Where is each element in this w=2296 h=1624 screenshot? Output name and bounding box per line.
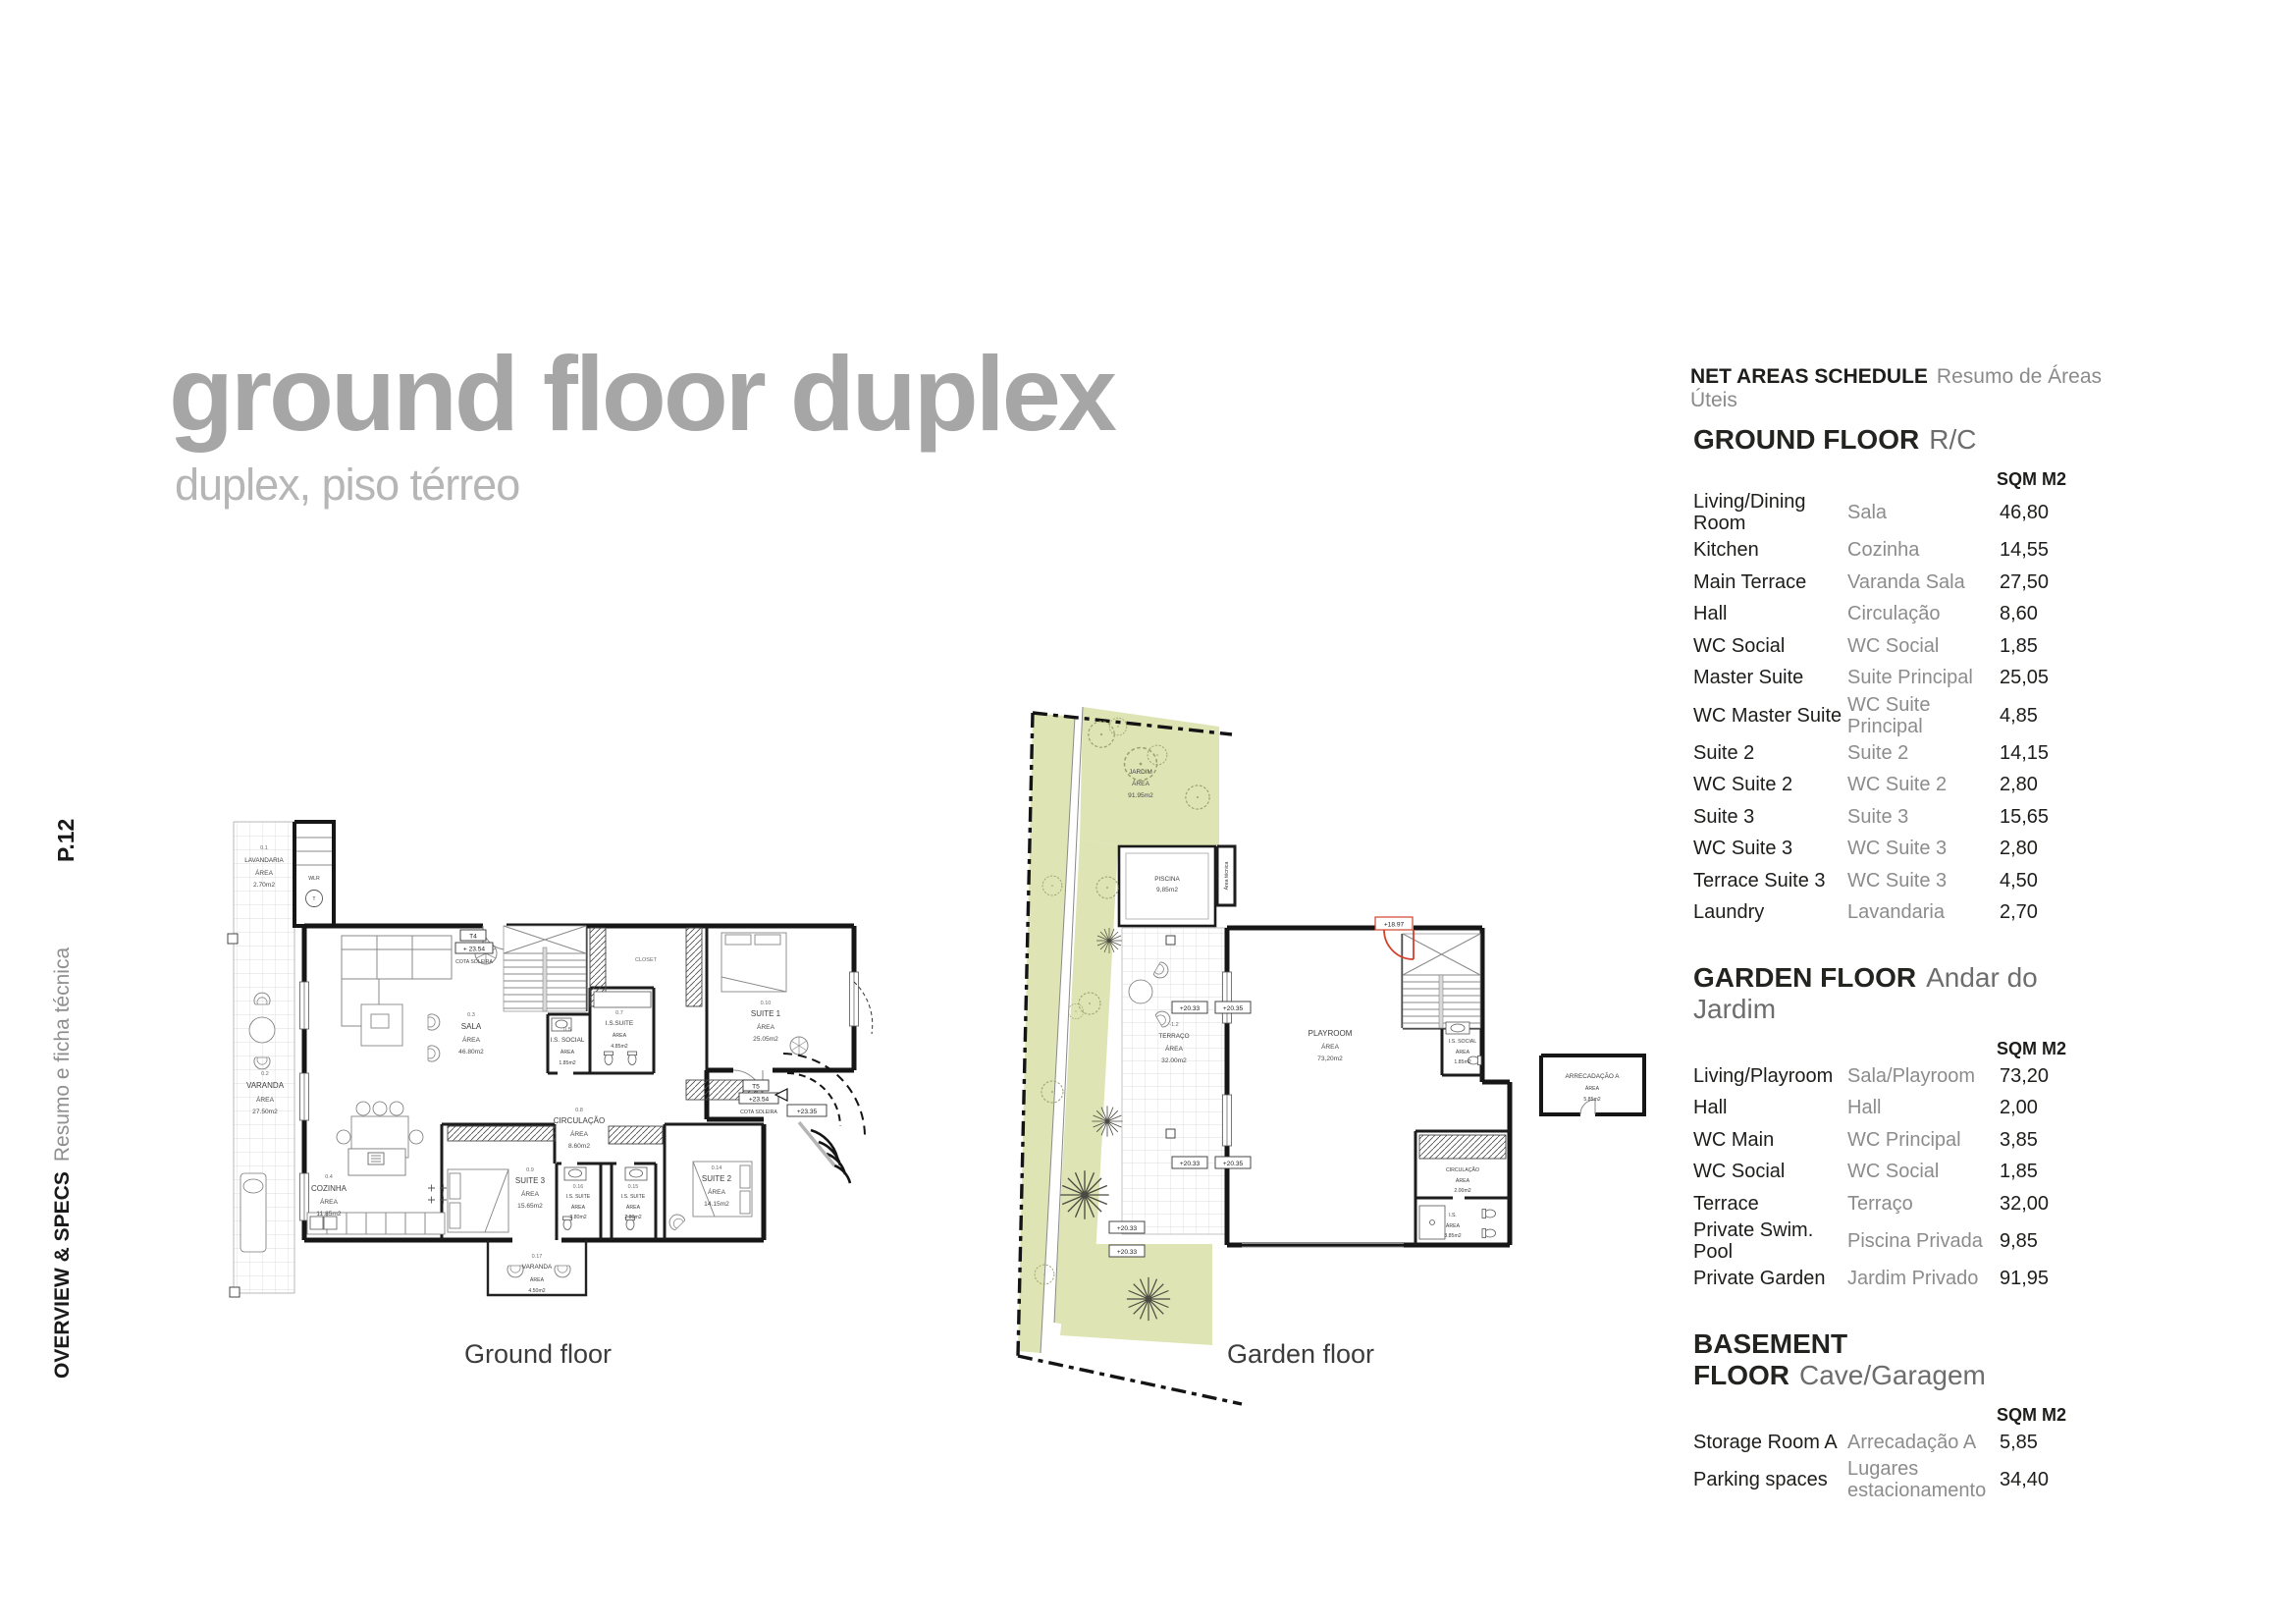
room-label-is-suite-16: 0.16I.S. SUITEÁREA2.80m2 xyxy=(566,1184,591,1220)
room-name-en: WC Main xyxy=(1693,1129,1847,1151)
svg-text:0.7: 0.7 xyxy=(615,1010,623,1016)
room-name-pt: WC Suite 2 xyxy=(1847,774,2000,795)
room-name-pt: Varanda Sala xyxy=(1847,571,2000,593)
table-row: Hall Circulação 8,60 xyxy=(1690,598,2127,630)
table-row: WC Social WC Social 1,85 xyxy=(1690,630,2127,663)
room-label-sala: 0.3SALAÁREA46.80m2 xyxy=(458,1012,484,1056)
room-label-is-suite: 0.7I.S.SUITEÁREA4.85m2 xyxy=(606,1010,633,1050)
room-area-value: 1,85 xyxy=(2000,635,2127,657)
svg-text:ÁREA: ÁREA xyxy=(1321,1042,1340,1051)
room-name-pt: Terraço xyxy=(1847,1193,2000,1215)
room-name-en: Storage Room A xyxy=(1693,1432,1847,1453)
svg-text:15.65m2: 15.65m2 xyxy=(517,1203,543,1210)
svg-text:+23.35: +23.35 xyxy=(797,1109,818,1115)
balcony-chair xyxy=(555,1266,570,1277)
svg-text:I.S. SOCIAL: I.S. SOCIAL xyxy=(1449,1039,1476,1045)
svg-text:ÁREA: ÁREA xyxy=(613,1032,627,1039)
svg-text:ÁREA: ÁREA xyxy=(708,1187,726,1196)
room-area-value: 91,95 xyxy=(2000,1268,2127,1289)
table-row: Master Suite Suite Principal 25,05 xyxy=(1690,662,2127,694)
svg-text:ÁREA: ÁREA xyxy=(256,1095,275,1104)
svg-text:COTA SOLEIRA: COTA SOLEIRA xyxy=(455,959,493,965)
svg-text:11.85m2: 11.85m2 xyxy=(316,1211,342,1218)
room-label-circulacao: CIRCULAÇÃOÁREA2.00m2 xyxy=(1446,1166,1479,1194)
driveway-arcs xyxy=(783,982,873,1183)
room-area-value: 46,80 xyxy=(2000,502,2127,523)
svg-text:0.3: 0.3 xyxy=(467,1012,475,1018)
room-name-en: Private Swim. Pool xyxy=(1693,1219,1847,1263)
svg-text:2.80m2: 2.80m2 xyxy=(624,1215,641,1220)
table-row: Living/Dining Room Sala 46,80 xyxy=(1690,491,2127,534)
room-label-is-suite-15: 0.15I.S. SUITEÁREA2.80m2 xyxy=(621,1184,646,1220)
heading-pt: Cave/Garagem xyxy=(1799,1360,1986,1390)
room-label-suite3: 0.9SUITE 3ÁREA15.65m2 xyxy=(515,1167,546,1210)
room-name-pt: Jardim Privado xyxy=(1847,1268,2000,1289)
room-area-value: 2,00 xyxy=(2000,1097,2127,1118)
svg-text:SALA: SALA xyxy=(461,1022,482,1031)
svg-text:ÁREA: ÁREA xyxy=(255,868,274,877)
circulation-wardrobe xyxy=(1419,1135,1506,1159)
suite1-bed xyxy=(721,933,786,992)
svg-text:0.10: 0.10 xyxy=(761,1001,772,1006)
svg-text:CIRCULAÇÃO: CIRCULAÇÃO xyxy=(554,1116,605,1125)
svg-text:9,85m2: 9,85m2 xyxy=(1156,887,1178,893)
room-name-pt: Suite 2 xyxy=(1847,742,2000,764)
section-heading-ground: GROUND FLOORR/C xyxy=(1690,424,2127,456)
room-area-value: 27,50 xyxy=(2000,571,2127,593)
svg-text:0.9: 0.9 xyxy=(526,1167,534,1173)
table-row: WC Suite 3 WC Suite 3 2,80 xyxy=(1690,833,2127,865)
room-label-varanda-17: 0.17VARANDAÁREA4.50m2 xyxy=(522,1254,553,1294)
suite3-wardrobe xyxy=(448,1126,556,1141)
svg-text:I.S.SUITE: I.S.SUITE xyxy=(606,1020,633,1027)
table-row: WC Social WC Social 1,85 xyxy=(1690,1156,2127,1188)
room-label-suite1: 0.10SUITE 1ÁREA25.05m2 xyxy=(751,1001,781,1043)
room-name-en: Suite 2 xyxy=(1693,742,1847,764)
room-label-is-social: 0.5I.S. SOCIALÁREA1.85m2 xyxy=(551,1027,585,1066)
table-row: Living/Playroom Sala/Playroom 73,20 xyxy=(1690,1060,2127,1093)
room-name-pt: Lavandaria xyxy=(1847,901,2000,923)
room-label-tecnica: Área técnica xyxy=(1223,861,1230,890)
schedule-title: NET AREAS SCHEDULEResumo de Áreas Úteis xyxy=(1690,365,2127,412)
svg-text:COZINHA: COZINHA xyxy=(311,1184,347,1193)
svg-text:1.85m2: 1.85m2 xyxy=(559,1060,575,1066)
svg-text:ÁREA: ÁREA xyxy=(320,1197,339,1206)
sidebar-section: OVERVIEW & SPECSResumo e ficha técnica xyxy=(51,947,75,1379)
svg-text:ARRECADAÇÃO A: ARRECADAÇÃO A xyxy=(1565,1071,1620,1080)
svg-text:VARANDA: VARANDA xyxy=(246,1081,285,1090)
schedule-title-en: NET AREAS SCHEDULE xyxy=(1690,365,1928,388)
room-name-en: Main Terrace xyxy=(1693,571,1847,593)
table-row: WC Suite 2 WC Suite 2 2,80 xyxy=(1690,769,2127,801)
svg-text:+20.33: +20.33 xyxy=(1180,1161,1201,1167)
balcony-chair xyxy=(507,1266,523,1277)
basement-floor-rows: Storage Room A Arrecadação A 5,85 Parkin… xyxy=(1690,1427,2127,1502)
svg-text:ÁREA: ÁREA xyxy=(521,1189,540,1198)
room-name-en: Parking spaces xyxy=(1693,1469,1847,1490)
table-row: Terrace Suite 3 WC Suite 3 4,50 xyxy=(1690,865,2127,897)
room-area-value: 15,65 xyxy=(2000,806,2127,828)
table-row: Private Swim. Pool Piscina Privada 9,85 xyxy=(1690,1219,2127,1263)
ground-floor-plan: T WLR xyxy=(147,781,874,1311)
garden-floor-caption: Garden floor xyxy=(1193,1339,1409,1370)
svg-text:ÁREA: ÁREA xyxy=(757,1022,775,1031)
room-name-en: Living/Dining Room xyxy=(1693,491,1847,534)
terrace-table xyxy=(249,1017,275,1043)
svg-text:25.05m2: 25.05m2 xyxy=(753,1036,778,1043)
room-name-en: WC Suite 3 xyxy=(1693,838,1847,859)
svg-text:+20.33: +20.33 xyxy=(1117,1249,1138,1256)
terrace-post xyxy=(228,934,238,944)
room-name-pt: Arrecadação A xyxy=(1847,1432,2000,1453)
svg-text:ÁREA: ÁREA xyxy=(571,1204,586,1211)
svg-text:0.5: 0.5 xyxy=(563,1027,571,1033)
room-name-en: Hall xyxy=(1693,603,1847,624)
room-name-pt: WC Social xyxy=(1847,635,2000,657)
room-name-pt: Lugares estacionamento xyxy=(1847,1458,2000,1501)
room-area-value: 1,85 xyxy=(2000,1161,2127,1182)
svg-text:ÁREA: ÁREA xyxy=(1456,1049,1470,1056)
closet-wardrobe xyxy=(686,928,702,1006)
svg-text:0.2: 0.2 xyxy=(261,1071,269,1077)
terrace-tiles xyxy=(1122,928,1227,1234)
room-area-value: 4,85 xyxy=(2000,705,2127,727)
svg-text:I.S. SOCIAL: I.S. SOCIAL xyxy=(551,1037,585,1044)
room-area-value: 3,85 xyxy=(2000,1129,2127,1151)
room-label-playroom: PLAYROOMÁREA73,20m2 xyxy=(1308,1029,1353,1062)
armchair-icon xyxy=(428,1014,440,1030)
room-name-en: WC Suite 2 xyxy=(1693,774,1847,795)
table-row: Parking spaces Lugares estacionamento 34… xyxy=(1690,1458,2127,1501)
room-name-en: Kitchen xyxy=(1693,539,1847,561)
room-name-en: Terrace Suite 3 xyxy=(1693,870,1847,892)
svg-text:ÁREA: ÁREA xyxy=(1132,779,1150,787)
page-subtitle: duplex, piso térreo xyxy=(175,460,519,511)
room-name-en: Laundry xyxy=(1693,901,1847,923)
svg-text:LAVANDARIA: LAVANDARIA xyxy=(244,857,284,864)
room-name-pt: Cozinha xyxy=(1847,539,2000,561)
room-name-en: Private Garden xyxy=(1693,1268,1847,1289)
svg-text:CIRCULAÇÃO: CIRCULAÇÃO xyxy=(1446,1166,1479,1173)
svg-text:+23.54: +23.54 xyxy=(749,1097,770,1104)
room-name-pt: Circulação xyxy=(1847,603,2000,624)
terrace-table xyxy=(1129,980,1152,1003)
svg-text:2.70m2: 2.70m2 xyxy=(253,882,275,889)
room-name-en: Terrace xyxy=(1693,1193,1847,1215)
svg-text:JARDIM: JARDIM xyxy=(1129,769,1152,776)
svg-text:73,20m2: 73,20m2 xyxy=(1317,1056,1343,1062)
sidebar-section-pt: Resumo e ficha técnica xyxy=(51,947,74,1162)
table-row: Main Terrace Varanda Sala 27,50 xyxy=(1690,567,2127,599)
room-name-en: WC Master Suite xyxy=(1693,705,1847,727)
svg-text:SUITE 1: SUITE 1 xyxy=(751,1009,781,1018)
room-area-value: 2,70 xyxy=(2000,901,2127,923)
net-areas-schedule: NET AREAS SCHEDULEResumo de Áreas Úteis … xyxy=(1690,365,2127,1501)
table-row: Kitchen Cozinha 14,55 xyxy=(1690,534,2127,567)
room-area-value: 2,80 xyxy=(2000,774,2127,795)
brochure-page: P.12 OVERVIEW & SPECSResumo e ficha técn… xyxy=(0,0,2296,1624)
table-row: WC Main WC Principal 3,85 xyxy=(1690,1124,2127,1157)
toilet-icon xyxy=(605,1052,614,1065)
svg-text:ÁREA: ÁREA xyxy=(570,1129,589,1138)
svg-text:3.85m2: 3.85m2 xyxy=(1444,1233,1461,1239)
room-name-pt: WC Suite Principal xyxy=(1847,694,2000,737)
svg-text:VARANDA: VARANDA xyxy=(522,1264,553,1271)
cota-t5: T5 +23.54 COTA SOLEIRA +23.35 xyxy=(739,1080,827,1116)
svg-text:ÁREA: ÁREA xyxy=(530,1276,545,1283)
svg-text:ÁREA: ÁREA xyxy=(1165,1044,1184,1053)
room-area-value: 9,85 xyxy=(2000,1230,2127,1252)
terrace-post xyxy=(230,1287,240,1297)
svg-text:32.00m2: 32.00m2 xyxy=(1161,1057,1187,1064)
unit-label: SQM M2 xyxy=(1690,1405,2127,1427)
garden-floor-plan: +18.97 xyxy=(991,677,1669,1409)
svg-text:0.15: 0.15 xyxy=(628,1184,639,1190)
room-name-en: WC Social xyxy=(1693,635,1847,657)
svg-text:ÁREA: ÁREA xyxy=(561,1049,575,1056)
svg-text:0.4: 0.4 xyxy=(325,1174,333,1180)
svg-text:T5: T5 xyxy=(752,1084,760,1091)
room-area-value: 4,50 xyxy=(2000,870,2127,892)
svg-text:0.16: 0.16 xyxy=(573,1184,584,1190)
room-name-en: Hall xyxy=(1693,1097,1847,1118)
svg-text:4.85m2: 4.85m2 xyxy=(611,1044,627,1050)
ground-floor-rows: Living/Dining Room Sala 46,80 Kitchen Co… xyxy=(1690,491,2127,929)
table-row: Private Garden Jardim Privado 91,95 xyxy=(1690,1263,2127,1295)
toilet-icon xyxy=(1482,1210,1496,1218)
room-name-pt: Suite 3 xyxy=(1847,806,2000,828)
room-name-pt: Hall xyxy=(1847,1097,2000,1118)
room-area-value: 5,85 xyxy=(2000,1432,2127,1453)
svg-text:COTA SOLEIRA: COTA SOLEIRA xyxy=(740,1110,777,1115)
page-title: ground floor duplex xyxy=(169,332,1114,455)
room-name-en: Living/Playroom xyxy=(1693,1065,1847,1087)
room-area-value: 2,80 xyxy=(2000,838,2127,859)
svg-text:+20.35: +20.35 xyxy=(1223,1161,1244,1167)
room-name-en: Master Suite xyxy=(1693,667,1847,688)
table-row: Terrace Terraço 32,00 xyxy=(1690,1188,2127,1220)
room-area-value: 14,15 xyxy=(2000,742,2127,764)
svg-text:27.50m2: 27.50m2 xyxy=(252,1109,278,1115)
table-row: Hall Hall 2,00 xyxy=(1690,1092,2127,1124)
sidebar-section-en: OVERVIEW & SPECS xyxy=(51,1171,74,1379)
staircase xyxy=(504,926,586,1011)
table-row: Suite 2 Suite 2 14,15 xyxy=(1690,737,2127,770)
svg-text:ÁREA: ÁREA xyxy=(1585,1085,1600,1092)
svg-text:ÁREA: ÁREA xyxy=(1446,1222,1461,1229)
svg-text:0.8: 0.8 xyxy=(575,1108,583,1113)
room-name-pt: WC Suite 3 xyxy=(1847,838,2000,859)
room-area-value: 32,00 xyxy=(2000,1193,2127,1215)
svg-text:2.80m2: 2.80m2 xyxy=(569,1215,586,1220)
room-name-pt: WC Suite 3 xyxy=(1847,870,2000,892)
svg-text:1.85m2: 1.85m2 xyxy=(1454,1059,1470,1065)
svg-text:PLAYROOM: PLAYROOM xyxy=(1308,1029,1353,1038)
bidet-icon xyxy=(1482,1229,1496,1238)
bathtub xyxy=(594,992,651,1007)
room-area-value: 25,05 xyxy=(2000,667,2127,688)
room-label-circulacao: 0.8CIRCULAÇÃOÁREA8.60m2 xyxy=(554,1108,605,1150)
svg-text:+20.33: +20.33 xyxy=(1180,1005,1201,1012)
storage-room xyxy=(1541,1056,1644,1114)
room-name-pt: WC Social xyxy=(1847,1161,2000,1182)
stove-icon xyxy=(428,1185,447,1204)
svg-text:ÁREA: ÁREA xyxy=(462,1035,481,1044)
room-name-pt: Piscina Privada xyxy=(1847,1230,2000,1252)
svg-text:SUITE 3: SUITE 3 xyxy=(515,1176,546,1185)
room-label-arrecadacao: ARRECADAÇÃO AÁREA5.85m2 xyxy=(1565,1071,1620,1103)
page-number: P.12 xyxy=(53,819,80,862)
garden-floor-rows: Living/Playroom Sala/Playroom 73,20 Hall… xyxy=(1690,1060,2127,1295)
heading-pt: R/C xyxy=(1929,424,1976,455)
svg-text:I.S.: I.S. xyxy=(1449,1213,1457,1218)
sun-lounger xyxy=(240,1173,266,1252)
room-area-value: 34,40 xyxy=(2000,1469,2127,1490)
svg-text:14.15m2: 14.15m2 xyxy=(704,1201,729,1208)
armchair-icon xyxy=(667,1212,686,1231)
room-name-pt: Sala/Playroom xyxy=(1847,1065,2000,1087)
svg-text:8.60m2: 8.60m2 xyxy=(568,1143,590,1150)
table-row: Storage Room A Arrecadação A 5,85 xyxy=(1690,1427,2127,1459)
svg-text:T4: T4 xyxy=(469,934,477,941)
table-row: Suite 3 Suite 3 15,65 xyxy=(1690,801,2127,834)
svg-text:2.00m2: 2.00m2 xyxy=(1454,1188,1470,1194)
svg-text:+ 23.54: + 23.54 xyxy=(463,947,486,953)
svg-text:46.80m2: 46.80m2 xyxy=(458,1049,484,1056)
svg-text:ÁREA: ÁREA xyxy=(1456,1177,1470,1184)
ground-floor-caption: Ground floor xyxy=(430,1339,646,1370)
svg-text:+18.97: +18.97 xyxy=(1384,922,1405,929)
svg-text:SUITE 2: SUITE 2 xyxy=(702,1174,732,1183)
table-row: Laundry Lavandaria 2,70 xyxy=(1690,896,2127,929)
svg-text:TERRAÇO: TERRAÇO xyxy=(1158,1033,1189,1040)
svg-text:PISCINA: PISCINA xyxy=(1154,876,1180,883)
hall-closet xyxy=(609,1126,663,1144)
section-heading-basement: BASEMENT FLOORCave/Garagem xyxy=(1690,1328,2127,1391)
svg-text:0.17: 0.17 xyxy=(532,1254,543,1260)
room-area-value: 8,60 xyxy=(2000,603,2127,624)
unit-label: SQM M2 xyxy=(1690,469,2127,491)
cota-t4: T4 + 23.54 COTA SOLEIRA xyxy=(455,930,493,965)
svg-text:+20.35: +20.35 xyxy=(1223,1005,1244,1012)
svg-text:0.14: 0.14 xyxy=(712,1165,722,1171)
room-name-pt: Sala xyxy=(1847,502,2000,523)
room-area-value: 14,55 xyxy=(2000,539,2127,561)
room-name-pt: Suite Principal xyxy=(1847,667,2000,688)
room-name-pt: WC Principal xyxy=(1847,1129,2000,1151)
room-name-en: WC Social xyxy=(1693,1161,1847,1182)
room-label-cozinha: 0.4COZINHAÁREA11.85m2 xyxy=(311,1174,347,1218)
svg-text:+20.33: +20.33 xyxy=(1117,1225,1138,1232)
wlr-label: WLR xyxy=(308,876,320,882)
table-row: WC Master Suite WC Suite Principal 4,85 xyxy=(1690,694,2127,737)
section-heading-garden: GARDEN FLOORAndar do Jardim xyxy=(1690,962,2127,1025)
svg-text:4.50m2: 4.50m2 xyxy=(528,1288,545,1294)
room-area-value: 73,20 xyxy=(2000,1065,2127,1087)
svg-text:-1.2: -1.2 xyxy=(1169,1022,1178,1028)
svg-text:I.S. SUITE: I.S. SUITE xyxy=(566,1194,591,1200)
armchair-icon xyxy=(428,1046,440,1061)
svg-text:0.1: 0.1 xyxy=(260,845,268,851)
svg-text:91.95m2: 91.95m2 xyxy=(1128,792,1153,799)
svg-text:I.S. SUITE: I.S. SUITE xyxy=(621,1194,646,1200)
bidet-icon xyxy=(628,1052,637,1065)
svg-text:5.85m2: 5.85m2 xyxy=(1583,1097,1600,1103)
room-name-en: Suite 3 xyxy=(1693,806,1847,828)
closet-label: CLOSET xyxy=(635,957,658,963)
suite3-bed xyxy=(448,1169,508,1232)
heading-en: GROUND FLOOR xyxy=(1693,424,1919,455)
heading-en: GARDEN FLOOR xyxy=(1693,962,1916,993)
room-label-is: I.S.ÁREA3.85m2 xyxy=(1444,1213,1461,1239)
unit-label: SQM M2 xyxy=(1690,1039,2127,1060)
svg-text:ÁREA: ÁREA xyxy=(626,1204,641,1211)
